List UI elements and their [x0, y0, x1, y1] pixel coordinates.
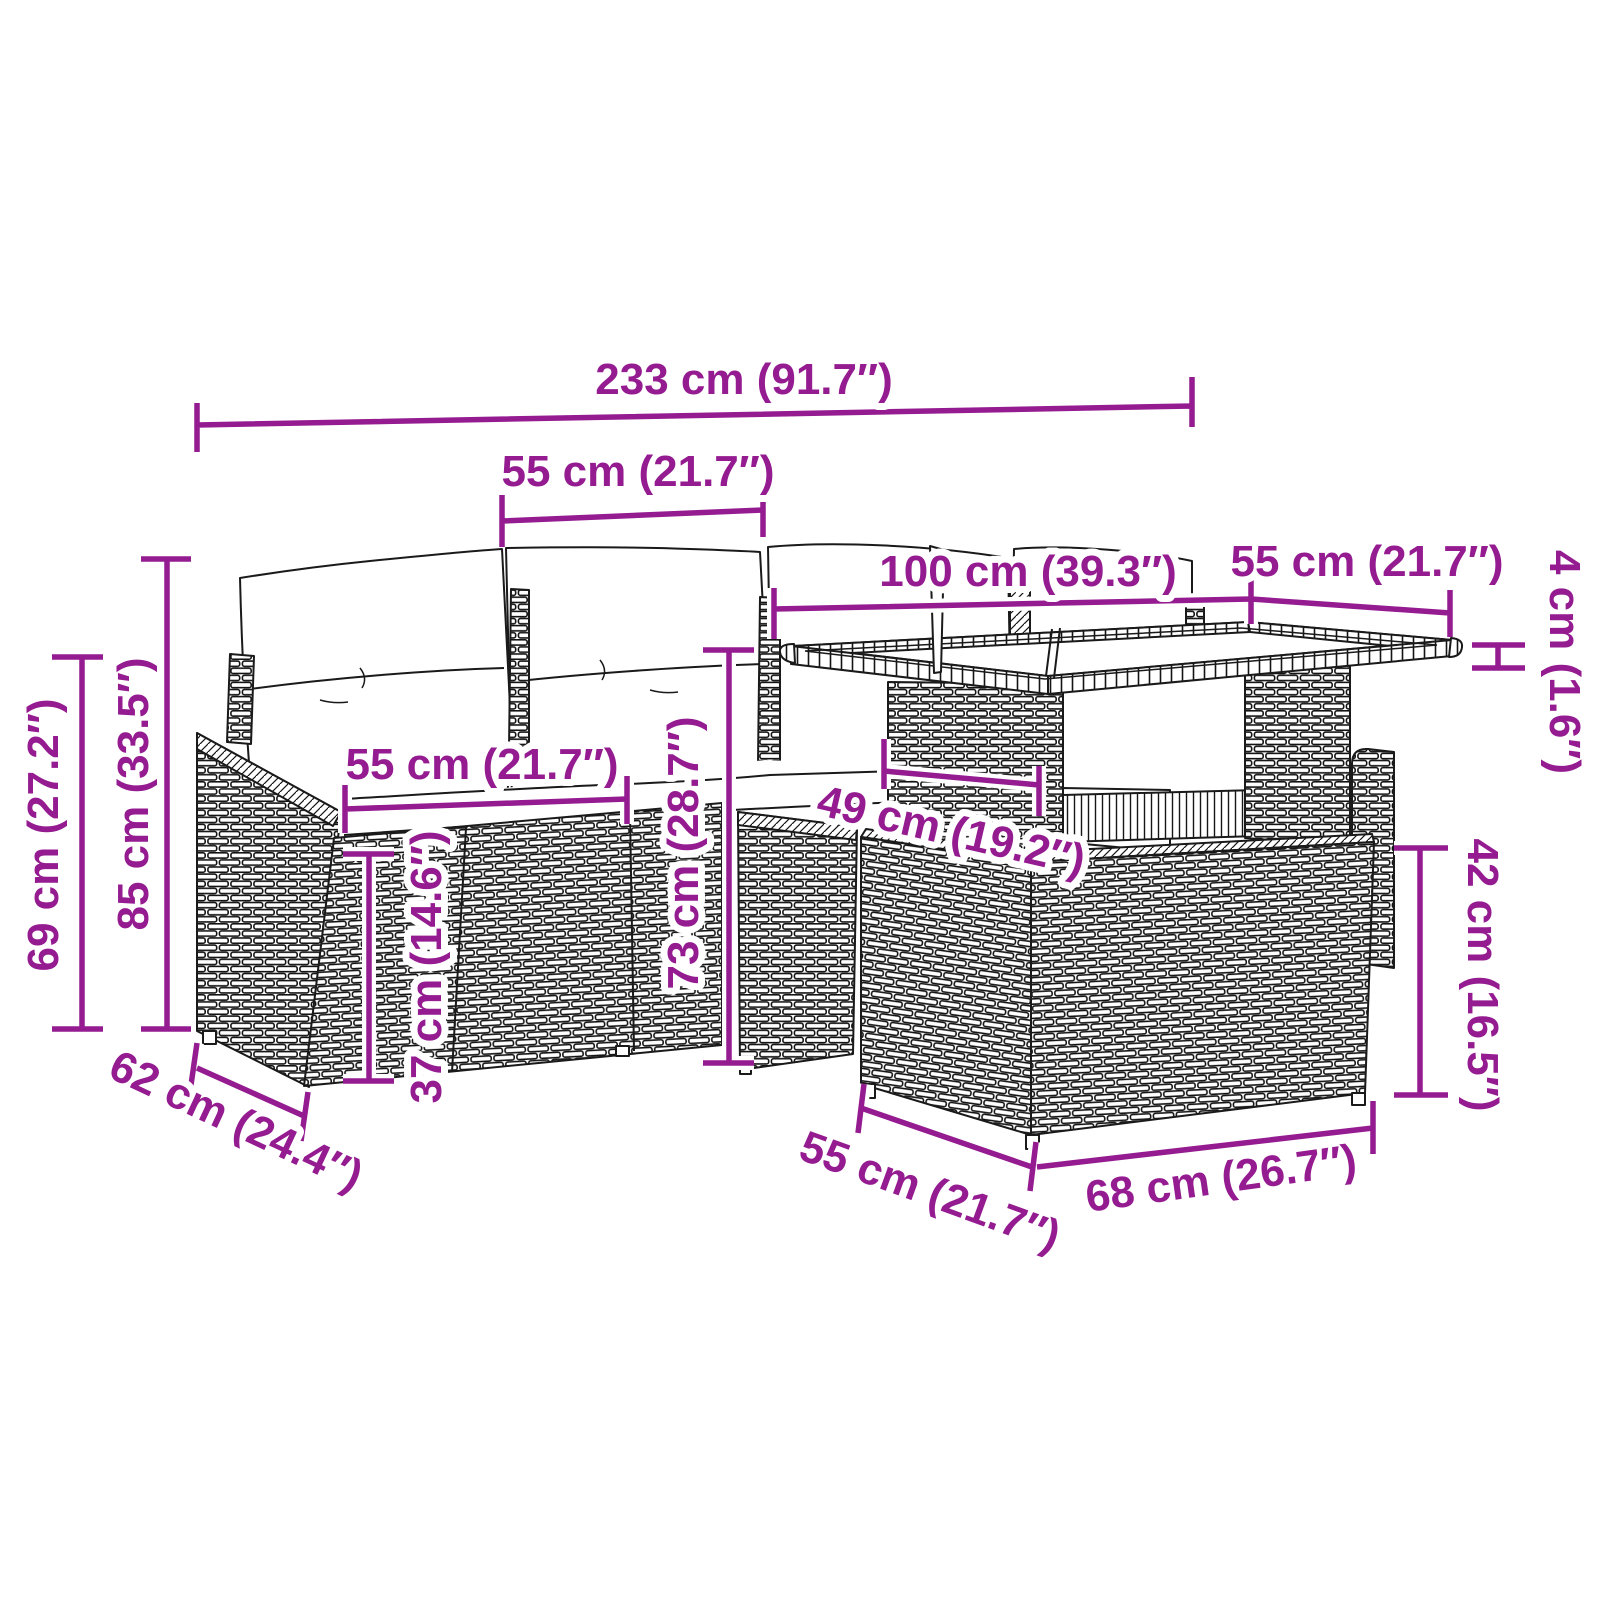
- svg-text:4 cm (1.6″): 4 cm (1.6″): [1540, 550, 1589, 774]
- svg-text:55 cm (21.7″): 55 cm (21.7″): [345, 740, 618, 789]
- svg-text:73 cm (28.7″): 73 cm (28.7″): [659, 716, 708, 989]
- svg-text:233 cm (91.7″): 233 cm (91.7″): [595, 355, 892, 404]
- svg-text:55 cm (21.7″): 55 cm (21.7″): [1230, 537, 1503, 586]
- svg-text:42 cm (16.5″): 42 cm (16.5″): [1458, 838, 1507, 1111]
- svg-text:55 cm (21.7″): 55 cm (21.7″): [501, 447, 774, 496]
- svg-text:69 cm (27.2″): 69 cm (27.2″): [19, 698, 68, 971]
- svg-text:85 cm (33.5″): 85 cm (33.5″): [109, 657, 158, 930]
- svg-text:37 cm (14.6″): 37 cm (14.6″): [402, 830, 451, 1103]
- svg-text:100 cm (39.3″): 100 cm (39.3″): [879, 547, 1176, 596]
